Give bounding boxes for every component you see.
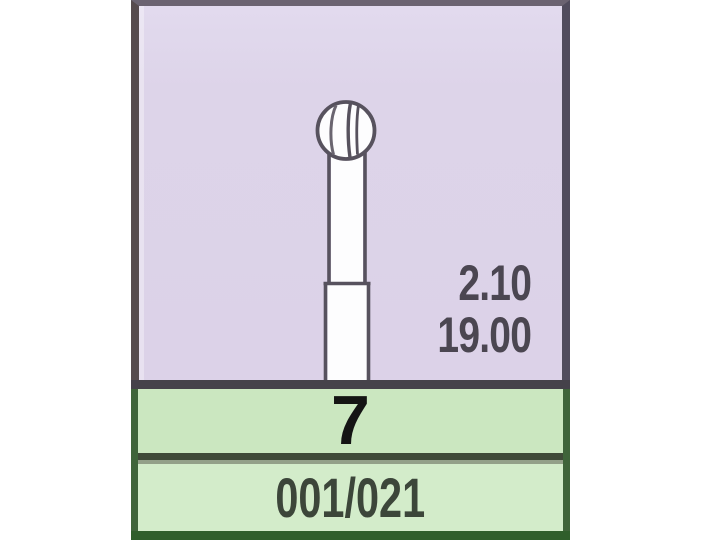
product-tile: 2.10 19.00 7 001/021 — [0, 0, 720, 540]
card-bottom-border — [131, 531, 570, 540]
dimension-value-top: 2.10 — [437, 257, 531, 309]
iso-size-code: 001/021 — [276, 464, 426, 531]
dimension-values: 2.10 19.00 — [411, 257, 531, 361]
shape-number-band: 7 — [131, 389, 570, 453]
bur-ball-head — [318, 102, 375, 159]
iso-code-band: 001/021 — [131, 464, 570, 531]
bur-product-card[interactable]: 2.10 19.00 7 001/021 — [131, 0, 570, 540]
band-divider — [131, 453, 570, 464]
dimension-value-bottom: 19.00 — [437, 309, 531, 361]
round-ball-bur-icon — [300, 98, 396, 380]
shape-number: 7 — [138, 389, 563, 451]
bur-shank — [328, 282, 369, 380]
